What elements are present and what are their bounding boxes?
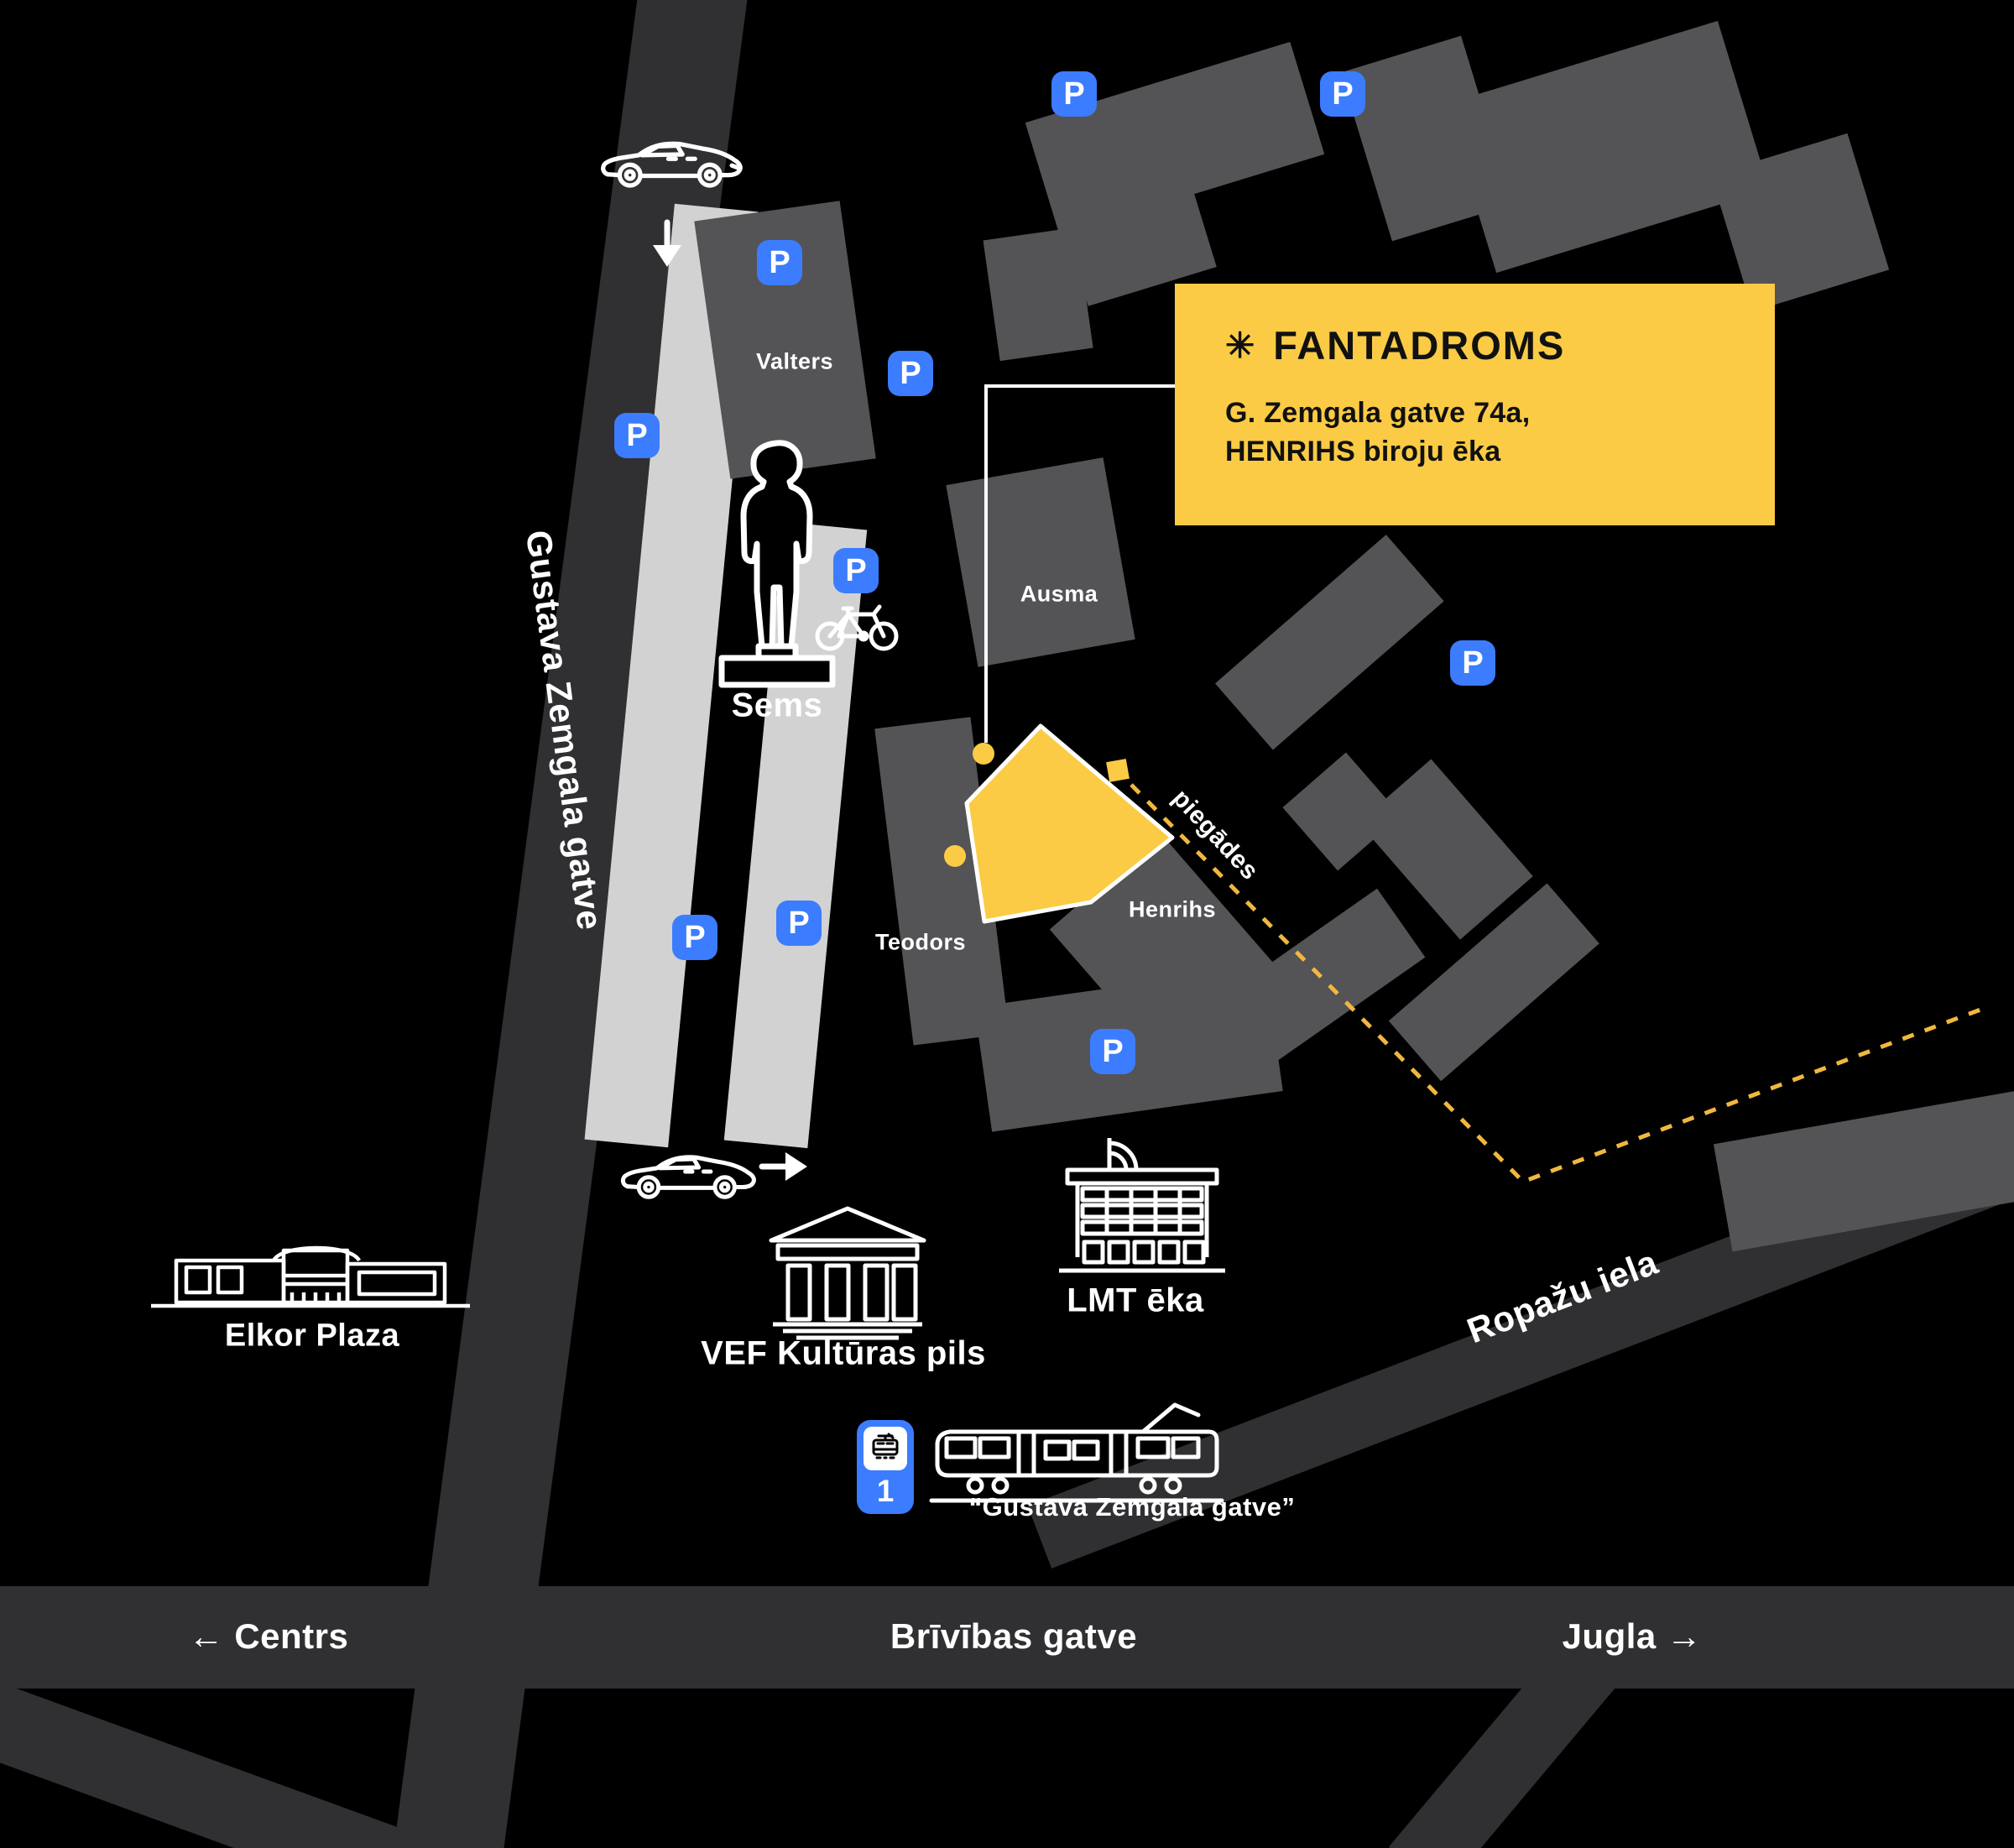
tram-line-number: 1 <box>877 1474 895 1509</box>
parking-icon: P <box>833 548 879 593</box>
asterisk-icon: ✳ <box>1225 325 1255 366</box>
parking-icon: P <box>1450 640 1495 686</box>
lmt-building-icon <box>1059 1138 1225 1271</box>
building-label-henrihs: Henrihs <box>1129 897 1216 923</box>
building-label-valters: Valters <box>756 349 833 375</box>
vef-kulturas-pils-icon <box>771 1209 924 1338</box>
info-box-title: FANTADROMS <box>1273 322 1565 368</box>
parking-icon: P <box>776 901 822 946</box>
car-icon <box>623 1157 754 1197</box>
direction-label-jugla: Jugla → <box>1563 1616 1703 1657</box>
landmark-label-elkor-plaza: Elkor Plaza <box>225 1318 399 1355</box>
parking-icon: P <box>757 240 802 285</box>
landmark-label-lmt-eka: LMT ēka <box>1067 1282 1204 1320</box>
map-canvas: P P P P P P P P P P Gustava Zemgala gatv… <box>0 0 2014 1848</box>
info-box-address-line2: HENRIHS biroju ēka <box>1225 432 1741 471</box>
parking-icon: P <box>614 413 660 458</box>
tram-stop-badge: 1 <box>857 1420 914 1514</box>
parking-icon: P <box>1051 71 1097 117</box>
parking-icon: P <box>1320 71 1365 117</box>
landmark-label-vef-kulturas-pils: VEF Kultūras pils <box>701 1335 986 1373</box>
info-box: ✳ FANTADROMS G. Zemgala gatve 74a, HENRI… <box>1175 284 1775 525</box>
tram-stop-label: “Gustava Zemgala gatve” <box>969 1492 1296 1522</box>
tram-glyph-icon <box>864 1427 907 1470</box>
building-label-teodors: Teodors <box>875 930 966 956</box>
map-graphics <box>0 0 2014 1848</box>
entrance-dot <box>973 743 994 765</box>
info-box-address-line1: G. Zemgala gatve 74a, <box>1225 394 1741 432</box>
landmark-label-sems: Sems <box>732 687 823 725</box>
entrance-dot <box>944 845 966 867</box>
parking-icon: P <box>888 351 933 396</box>
exit-arrow-right-icon <box>762 1152 807 1181</box>
building-label-ausma: Ausma <box>1020 582 1098 608</box>
elkor-plaza-icon <box>151 1248 470 1306</box>
direction-label-centrs: ← Centrs <box>189 1616 349 1657</box>
delivery-point-square <box>1106 759 1130 782</box>
parking-icon: P <box>1090 1029 1135 1074</box>
building-ausma <box>946 457 1135 667</box>
street-label-brivibas: Brīvības gatve <box>890 1616 1137 1657</box>
buildings-layer <box>694 21 2014 1251</box>
parking-icon: P <box>672 915 717 960</box>
